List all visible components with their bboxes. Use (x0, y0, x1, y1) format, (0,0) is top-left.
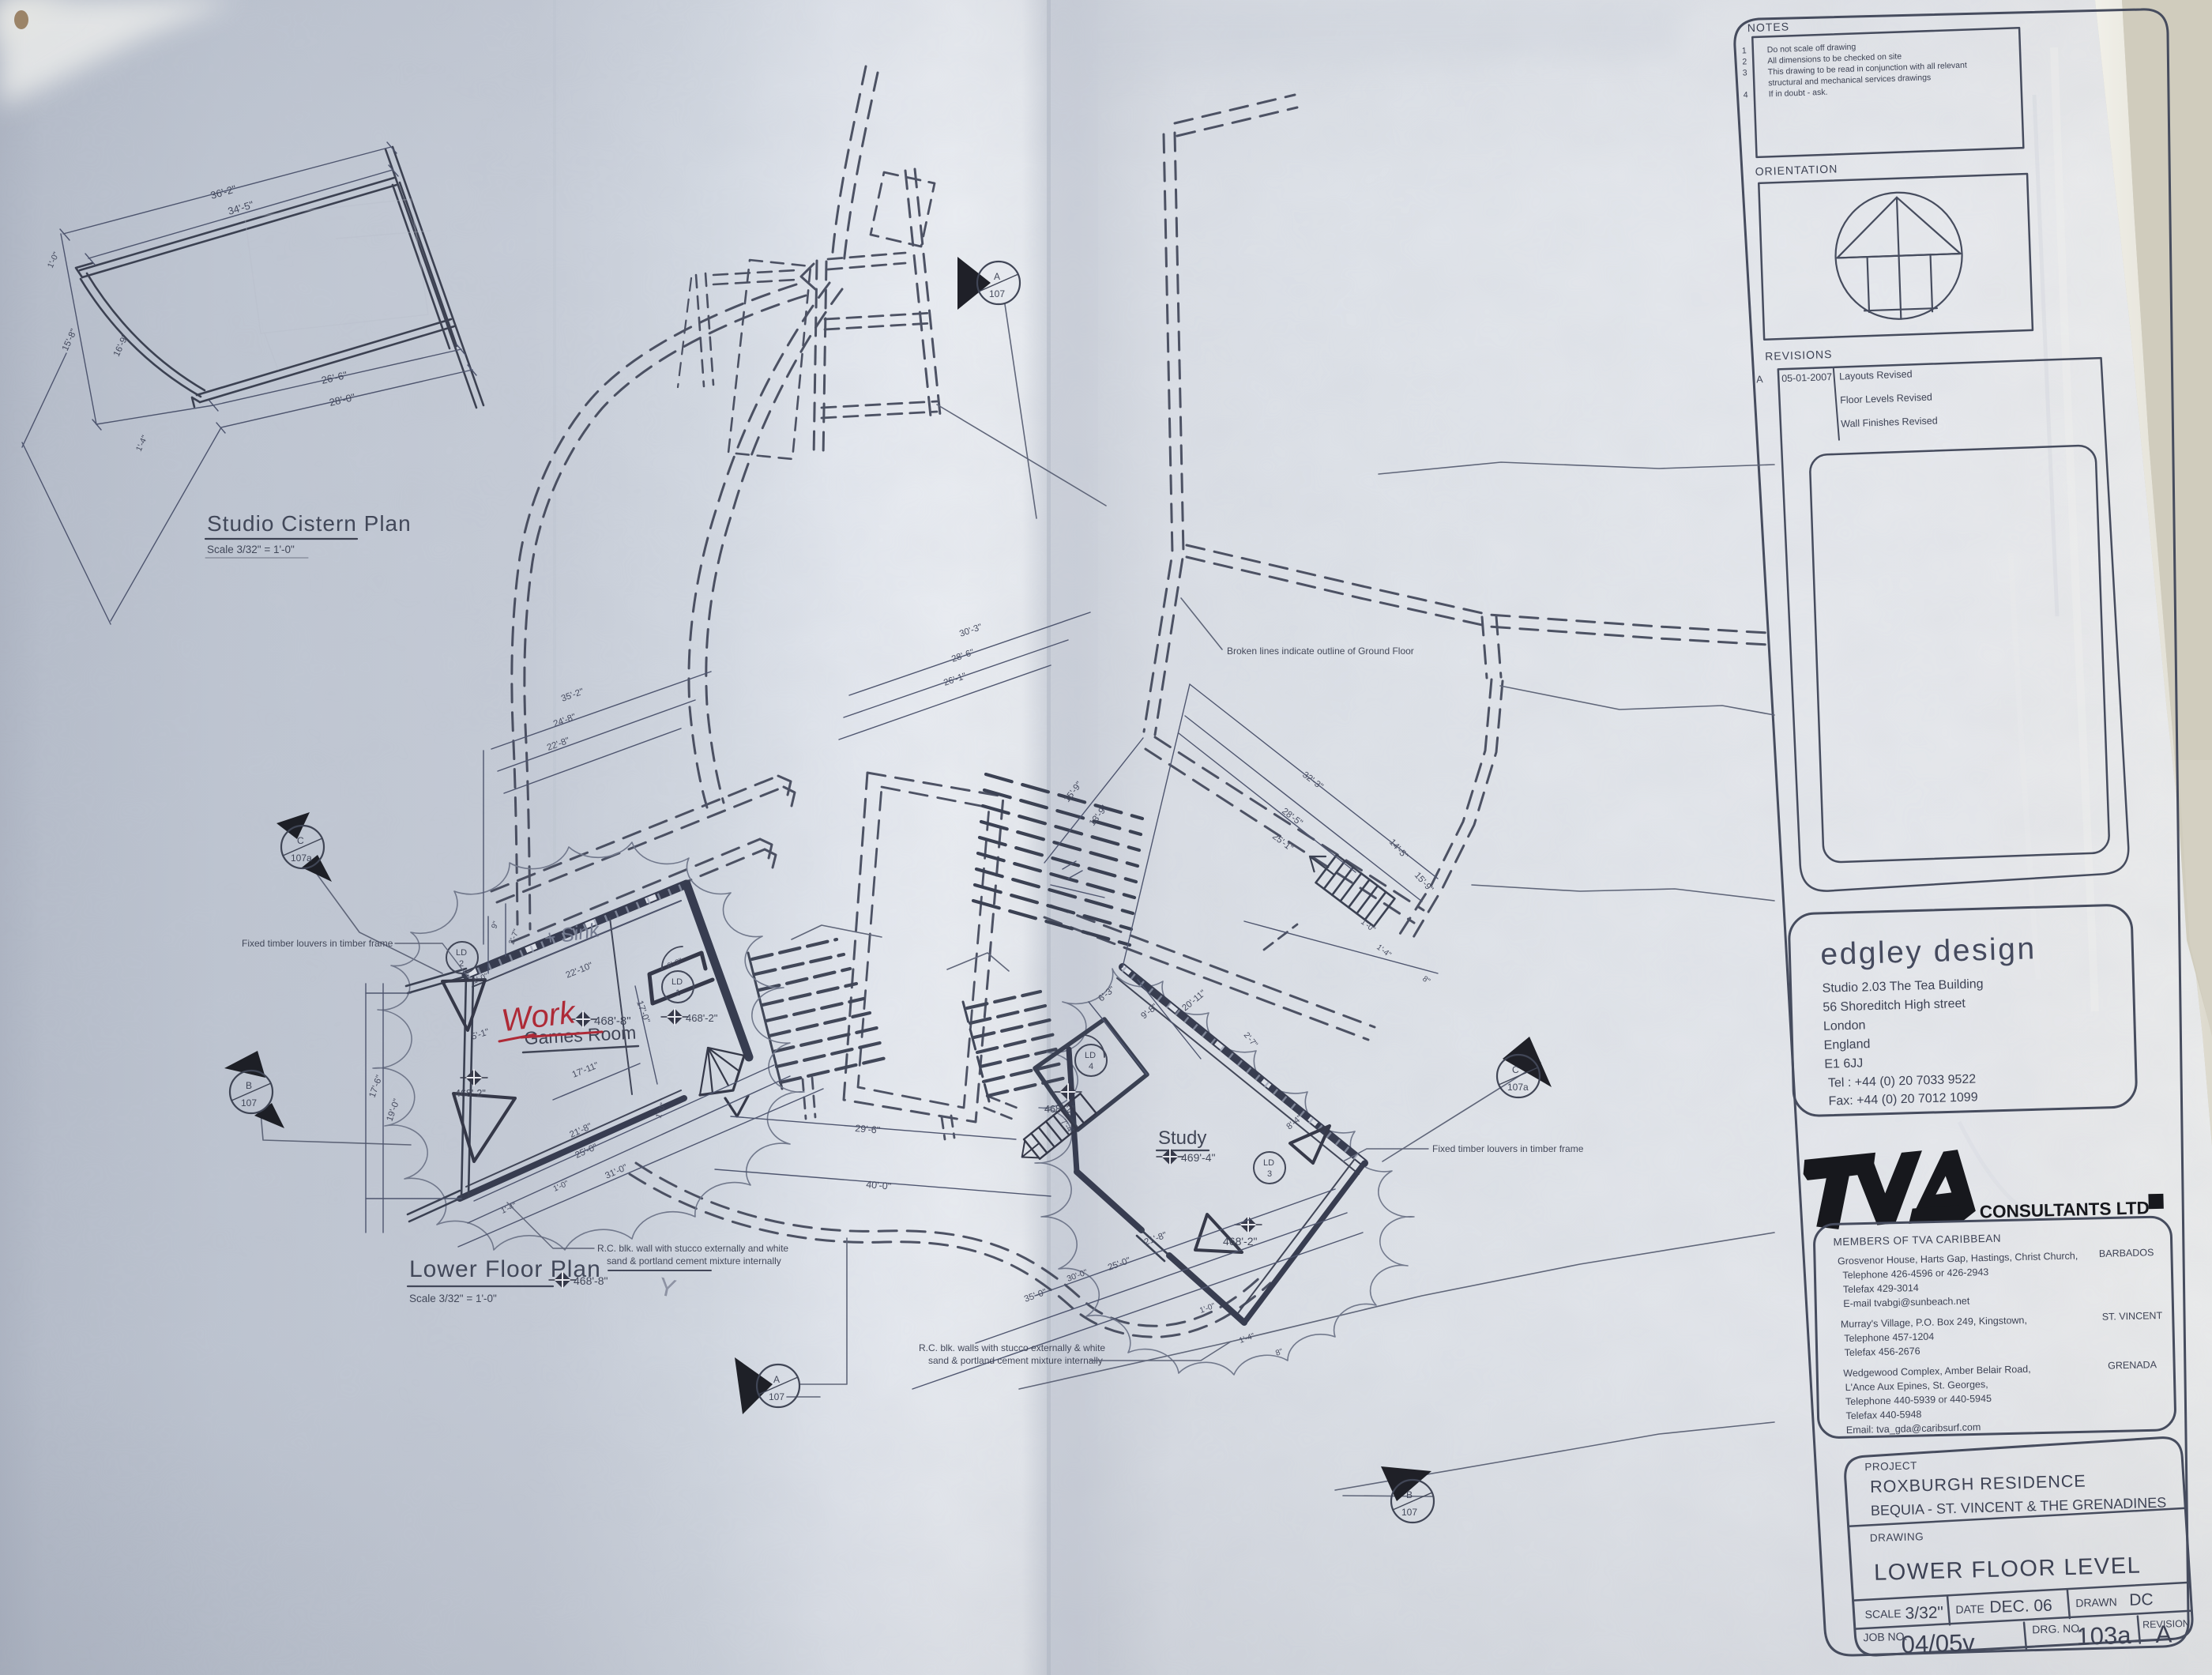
svg-text:468'-8": 468'-8" (574, 1274, 608, 1287)
svg-text:4: 4 (1089, 1062, 1093, 1071)
svg-text:LD: LD (456, 948, 467, 958)
svg-text:4: 4 (1744, 90, 1748, 100)
svg-text:LD: LD (671, 977, 683, 987)
svg-text:Fixed timber louvers in timber: Fixed timber louvers in timber frame (1432, 1143, 1584, 1154)
svg-text:DRAWING: DRAWING (1870, 1530, 1924, 1544)
svg-text:Lower Floor Plan: Lower Floor Plan (409, 1256, 601, 1282)
svg-text:Broken lines indicate outline: Broken lines indicate outline of Ground … (1227, 646, 1414, 657)
svg-text:England: England (1823, 1037, 1870, 1052)
svg-text:R.C. blk. walls with stucco ex: R.C. blk. walls with stucco externally &… (919, 1342, 1105, 1353)
svg-text:Scale 3/32" = 1'-0": Scale 3/32" = 1'-0" (409, 1293, 497, 1304)
svg-text:sand & portland cement mixture: sand & portland cement mixture internall… (607, 1255, 781, 1267)
svg-text:E1 6JJ: E1 6JJ (1824, 1056, 1863, 1071)
svg-text:DATE: DATE (1955, 1602, 1984, 1616)
svg-text:LD: LD (1263, 1158, 1274, 1168)
svg-text:Telefax 440-5948: Telefax 440-5948 (1845, 1409, 1921, 1421)
svg-text:1: 1 (675, 988, 680, 998)
svg-text:Scale 3/32" = 1'-0": Scale 3/32" = 1'-0" (207, 544, 295, 555)
svg-text:107a: 107a (1507, 1082, 1529, 1093)
svg-text:29'-6": 29'-6" (855, 1123, 881, 1136)
svg-text:2: 2 (459, 959, 464, 969)
svg-text:LD: LD (1085, 1051, 1096, 1060)
svg-text:A: A (2155, 1620, 2172, 1648)
svg-text:sand & portland cement mixture: sand & portland cement mixture internall… (928, 1355, 1103, 1366)
svg-text:DC: DC (2129, 1590, 2154, 1609)
svg-text:SCALE: SCALE (1864, 1607, 1901, 1620)
svg-text:C: C (297, 835, 304, 846)
svg-text:103a: 103a (2076, 1621, 2132, 1651)
svg-text:469'-4": 469'-4" (1181, 1151, 1215, 1164)
svg-text:ST. VINCENT: ST. VINCENT (2102, 1310, 2163, 1323)
svg-text:A: A (1756, 374, 1763, 385)
svg-text:Telephone 457-1204: Telephone 457-1204 (1844, 1331, 1934, 1345)
svg-text:3: 3 (1743, 68, 1747, 77)
svg-text:B: B (1406, 1489, 1413, 1500)
svg-text:DRAWN: DRAWN (2075, 1595, 2117, 1609)
svg-text:107: 107 (1401, 1507, 1417, 1518)
svg-text:Fixed timber louvers in timber: Fixed timber louvers in timber frame (242, 938, 393, 949)
svg-text:REVISIONS: REVISIONS (1765, 348, 1833, 363)
svg-text:GRENADA: GRENADA (2108, 1359, 2157, 1371)
svg-text:edgley design: edgley design (1820, 932, 2037, 972)
svg-text:1: 1 (1742, 46, 1747, 55)
svg-text:R.C. blk. wall with stucco ext: R.C. blk. wall with stucco externally an… (597, 1243, 788, 1254)
svg-text:BARBADOS: BARBADOS (2099, 1247, 2154, 1259)
svg-text:Studio Cistern Plan: Studio Cistern Plan (207, 511, 412, 536)
svg-text:A: A (773, 1374, 780, 1385)
svg-text:468'-2": 468'-2" (686, 1012, 718, 1024)
svg-text:3: 3 (1267, 1169, 1272, 1179)
svg-text:107: 107 (769, 1391, 784, 1402)
svg-text:04/05v: 04/05v (1901, 1628, 1976, 1658)
svg-text:NOTES: NOTES (1747, 20, 1790, 34)
svg-text:468'-2": 468'-2" (455, 1088, 486, 1099)
svg-text:B: B (246, 1080, 252, 1091)
svg-text:107: 107 (241, 1097, 257, 1109)
svg-text:PROJECT: PROJECT (1864, 1459, 1917, 1473)
svg-text:2: 2 (1742, 57, 1747, 66)
svg-text:3/32": 3/32" (1905, 1604, 1943, 1623)
svg-text:05-01-2007: 05-01-2007 (1781, 371, 1832, 384)
svg-text:DEC. 06: DEC. 06 (1989, 1597, 2052, 1617)
svg-text:Telefax 456-2676: Telefax 456-2676 (1845, 1346, 1920, 1358)
svg-text:C: C (1512, 1064, 1519, 1075)
svg-text:Telefax 429-3014: Telefax 429-3014 (1843, 1282, 1919, 1295)
svg-text:107a: 107a (291, 853, 312, 864)
svg-text:Study: Study (1158, 1127, 1206, 1149)
svg-text:DRG. NO.: DRG. NO. (2032, 1622, 2082, 1636)
svg-text:107: 107 (989, 288, 1005, 299)
svg-text:A: A (994, 271, 1000, 282)
svg-text:London: London (1823, 1018, 1866, 1033)
svg-text:40'-0": 40'-0" (866, 1179, 892, 1192)
